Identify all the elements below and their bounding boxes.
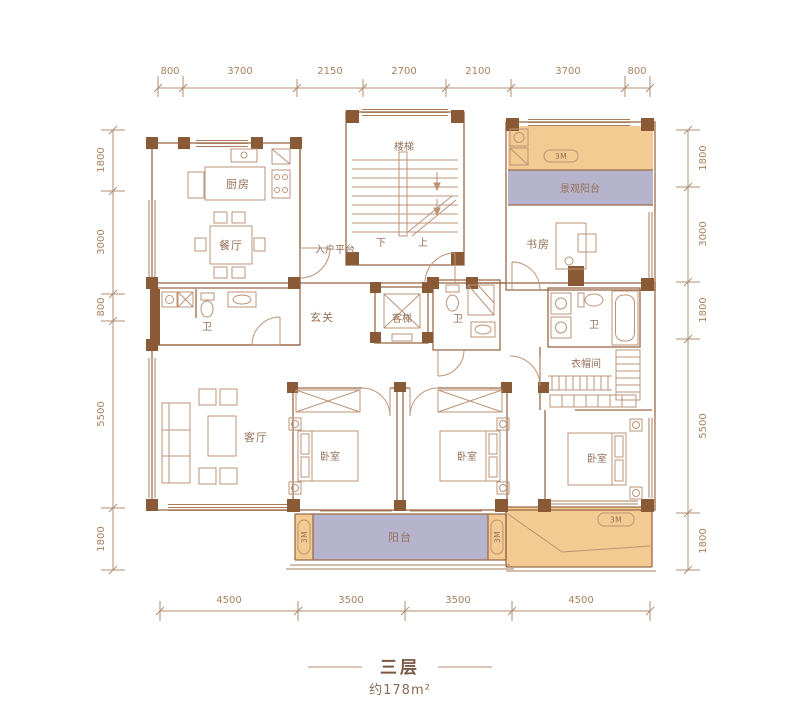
floor-title: 三层 [380,658,420,678]
height-marker-badge-balcony-left: 3M [300,531,309,543]
dim-right-3: 1800 [698,297,709,322]
room-label-foyer: 玄关 [310,310,334,324]
terrace-fill [506,507,652,567]
dim-top-3: 2150 [317,66,342,77]
title-block: 三层 约178m² [308,658,492,698]
room-label-bedroom-c: 卧室 [587,452,607,465]
room-label-bath-center: 卫 [453,314,463,325]
dim-right-5: 1800 [698,528,709,553]
dining-room: 餐厅 [195,212,265,278]
stairs-up-label: 上 [418,237,428,249]
floor-plan-drawing: 800 3700 2150 2700 2100 3700 800 4500 35… [0,0,795,704]
bedroom-a: 卧室 [289,388,390,494]
elevator: 客梯 [384,294,420,341]
room-label-stairs: 楼梯 [394,140,414,153]
height-marker-badge-terrace: 3M [610,516,622,525]
living-room: 客厅 [162,389,268,484]
room-label-entry-platform: 入户平台 [315,243,355,256]
stairs-down-label: 下 [376,238,386,249]
height-marker-badge-balcony-right: 3M [493,531,502,543]
dim-top-2: 3700 [227,66,252,77]
floor-area: 约178m² [369,683,431,698]
room-label-bedroom-a: 卧室 [320,450,340,463]
dim-right-4: 5500 [698,413,709,438]
room-label-kitchen: 厨房 [226,178,250,191]
cloakroom: 衣帽间 [510,350,640,407]
dim-top-5: 2100 [465,66,490,77]
room-label-bath-left: 卫 [202,322,212,333]
room-label-view-balcony: 景观阳台 [560,182,600,195]
dim-left-2: 3000 [96,229,107,254]
bathroom-right: 卫 [551,291,638,345]
room-label-bedroom-b: 卧室 [457,450,477,463]
bathroom-center: 卫 [438,285,495,376]
bathroom-left: 卫 [162,292,280,345]
room-label-living: 客厅 [244,430,268,444]
bedroom-c: 卧室 [568,419,642,499]
dim-top-7: 800 [627,66,646,77]
dim-bottom-3: 3500 [445,595,470,606]
bedroom-b: 卧室 [410,388,509,494]
room-label-balcony: 阳台 [388,530,412,544]
dim-top-1: 800 [160,66,179,77]
dim-bottom-1: 4500 [216,595,241,606]
kitchen: 厨房 [188,149,290,200]
dim-top-4: 2700 [391,66,416,77]
dim-left-5: 1800 [96,526,107,551]
dim-left-4: 5500 [96,401,107,426]
room-label-cloakroom: 衣帽间 [571,357,601,370]
dim-right-2: 3000 [698,221,709,246]
staircase: 楼梯 下 上 [352,140,458,249]
dim-top-6: 3700 [555,66,580,77]
dim-right-1: 1800 [698,145,709,170]
dim-left-3: 800 [96,297,107,316]
room-label-dining: 餐厅 [219,238,243,252]
dim-left-1: 1800 [96,147,107,172]
height-marker-badge-top: 3M [555,152,567,161]
top-terrace-fill [508,126,653,170]
dim-bottom-4: 4500 [568,595,593,606]
floor-plan-page: 800 3700 2150 2700 2100 3700 800 4500 35… [0,0,795,704]
room-label-study: 书房 [526,238,550,251]
room-label-bath-right: 卫 [589,320,599,331]
room-label-elevator: 客梯 [392,312,412,325]
dim-bottom-2: 3500 [338,595,363,606]
